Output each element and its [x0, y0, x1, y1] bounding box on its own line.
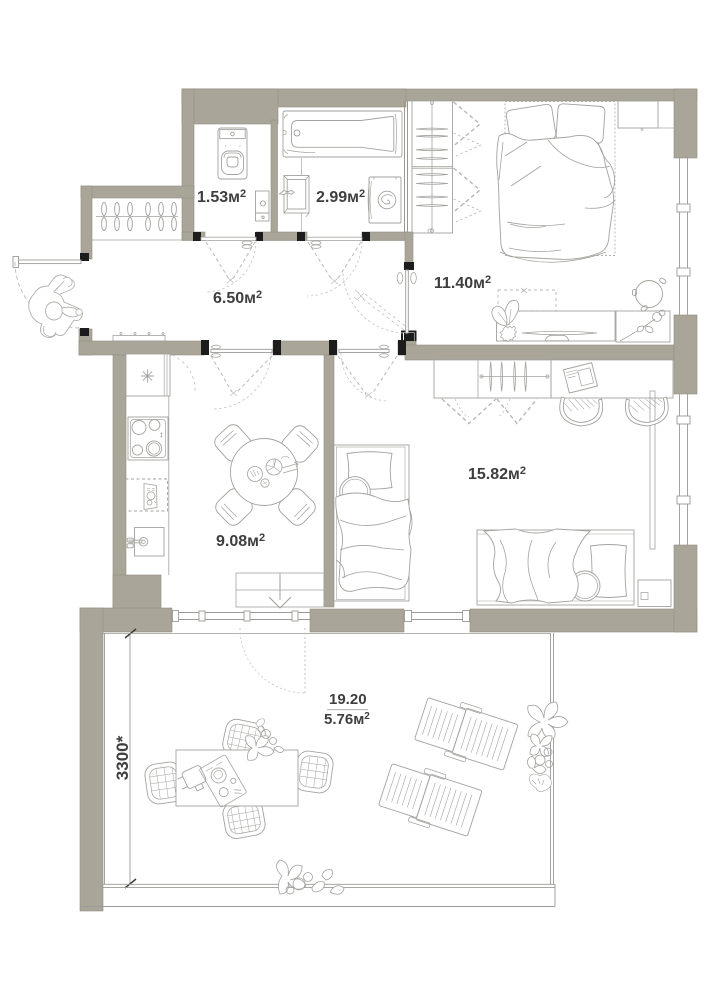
svg-text:5.76м2: 5.76м2 — [324, 711, 370, 728]
svg-text:3300*: 3300* — [113, 735, 132, 780]
svg-text:15.82м2: 15.82м2 — [468, 465, 526, 483]
svg-text:6.50м2: 6.50м2 — [213, 289, 262, 307]
svg-text:19.20: 19.20 — [329, 691, 367, 708]
svg-text:9.08м2: 9.08м2 — [216, 532, 265, 550]
svg-text:2.99м2: 2.99м2 — [316, 188, 365, 206]
svg-text:1.53м2: 1.53м2 — [197, 188, 246, 206]
svg-text:11.40м2: 11.40м2 — [434, 274, 491, 292]
